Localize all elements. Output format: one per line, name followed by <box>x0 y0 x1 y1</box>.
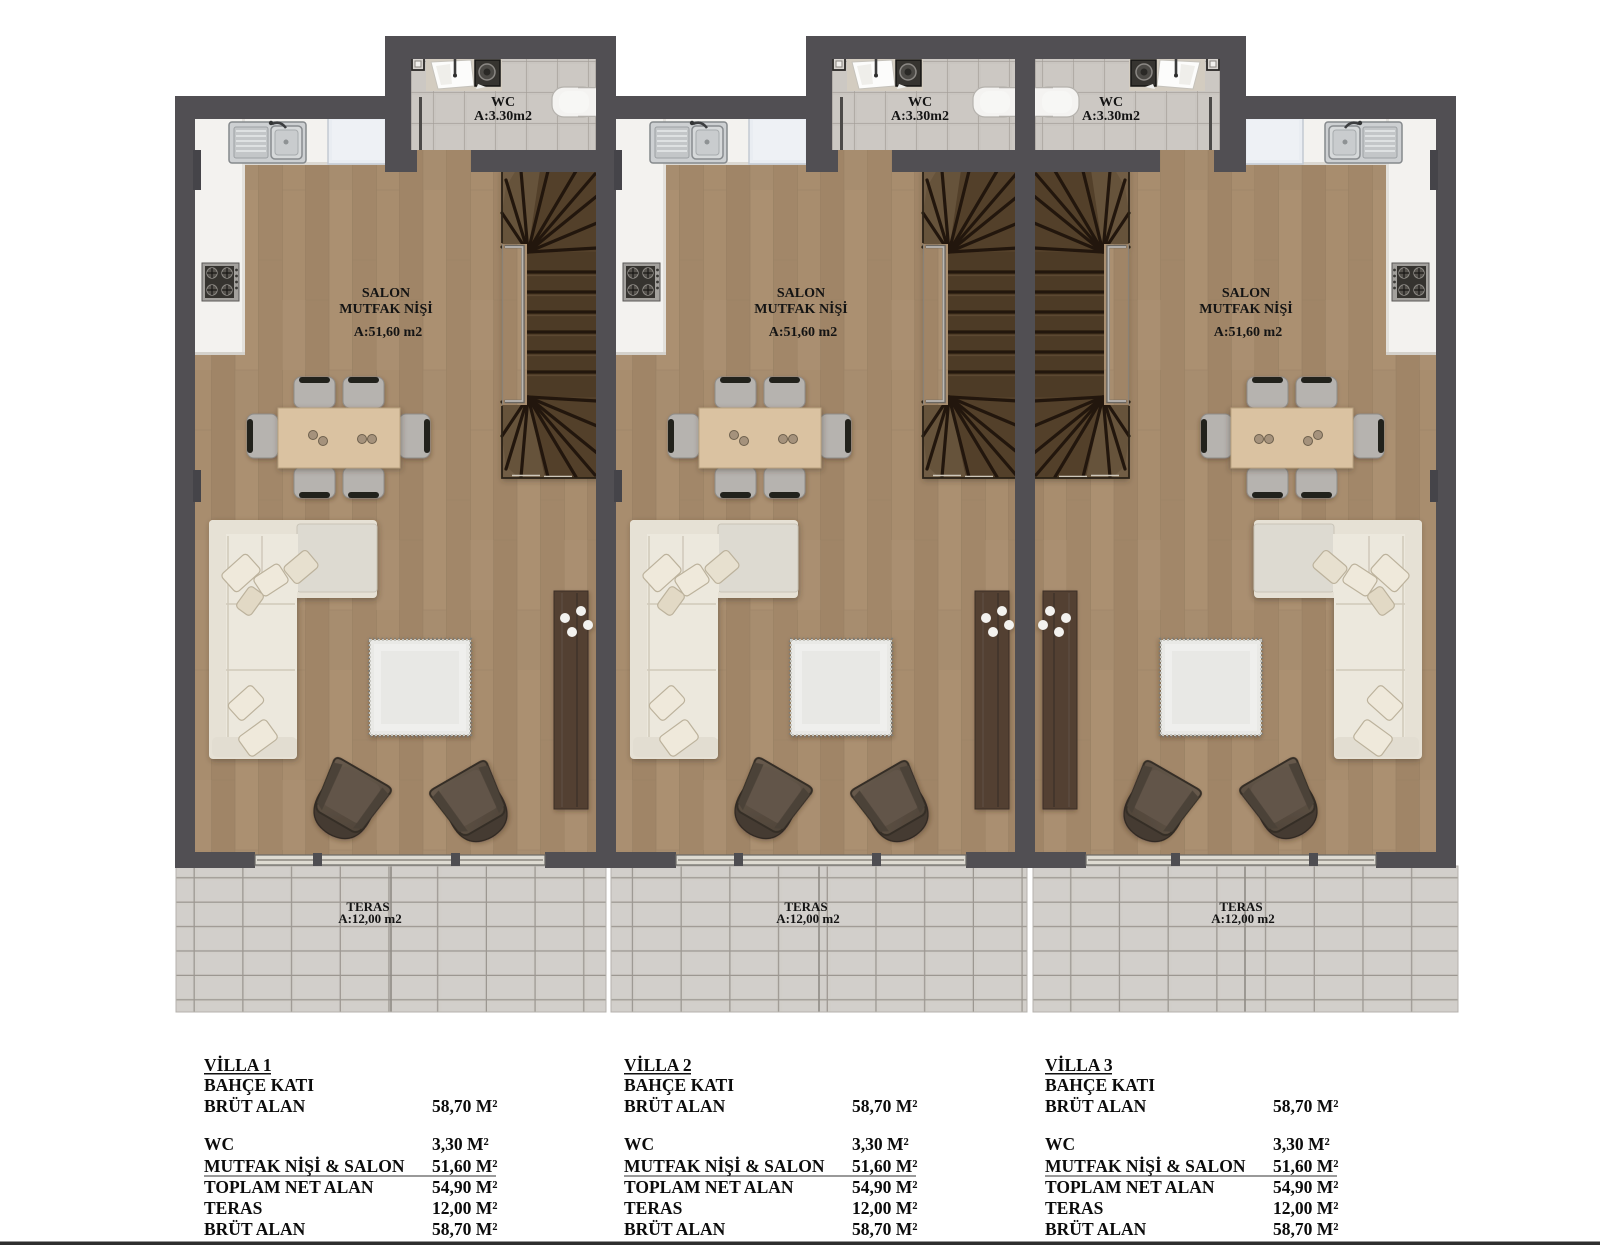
svg-text:BRÜT ALAN: BRÜT ALAN <box>204 1219 306 1239</box>
svg-text:54,90 M²: 54,90 M² <box>432 1177 498 1197</box>
svg-text:VİLLA 1: VİLLA 1 <box>204 1055 272 1075</box>
svg-text:58,70 M²: 58,70 M² <box>852 1219 918 1239</box>
svg-text:51,60 M²: 51,60 M² <box>432 1156 498 1176</box>
svg-text:WC: WC <box>908 95 932 110</box>
svg-text:TERAS: TERAS <box>624 1198 682 1218</box>
svg-text:BRÜT ALAN: BRÜT ALAN <box>624 1219 726 1239</box>
svg-text:BAHÇE KATI: BAHÇE KATI <box>204 1075 314 1095</box>
svg-text:TOPLAM NET ALAN: TOPLAM NET ALAN <box>624 1177 794 1197</box>
svg-text:TERAS: TERAS <box>1045 1198 1103 1218</box>
svg-text:MUTFAK NİŞİ & SALON: MUTFAK NİŞİ & SALON <box>204 1156 405 1176</box>
svg-text:3,30 M²: 3,30 M² <box>432 1134 489 1154</box>
svg-text:WC: WC <box>1099 95 1123 110</box>
svg-text:12,00 M²: 12,00 M² <box>1273 1198 1339 1218</box>
svg-text:WC: WC <box>204 1134 234 1154</box>
svg-text:A:51,60 m2: A:51,60 m2 <box>354 325 422 340</box>
svg-text:MUTFAK NİŞİ: MUTFAK NİŞİ <box>339 300 432 317</box>
svg-text:TERAS: TERAS <box>204 1198 262 1218</box>
svg-text:58,70 M²: 58,70 M² <box>1273 1219 1339 1239</box>
svg-text:12,00 M²: 12,00 M² <box>432 1198 498 1218</box>
svg-text:A:51,60 m2: A:51,60 m2 <box>769 325 837 340</box>
svg-text:A:3.30m2: A:3.30m2 <box>1082 109 1140 124</box>
svg-text:A:12,00 m2: A:12,00 m2 <box>338 911 402 926</box>
svg-text:12,00 M²: 12,00 M² <box>852 1198 918 1218</box>
svg-text:58,70 M²: 58,70 M² <box>432 1219 498 1239</box>
svg-text:MUTFAK NİŞİ: MUTFAK NİŞİ <box>1199 300 1292 317</box>
svg-text:MUTFAK NİŞİ: MUTFAK NİŞİ <box>754 300 847 317</box>
svg-text:SALON: SALON <box>362 286 410 301</box>
svg-text:BRÜT ALAN: BRÜT ALAN <box>1045 1096 1147 1116</box>
svg-text:VİLLA 2: VİLLA 2 <box>624 1055 692 1075</box>
svg-text:58,70 M²: 58,70 M² <box>432 1096 498 1116</box>
svg-text:VİLLA 3: VİLLA 3 <box>1045 1055 1113 1075</box>
svg-text:BAHÇE KATI: BAHÇE KATI <box>624 1075 734 1095</box>
svg-text:WC: WC <box>624 1134 654 1154</box>
svg-text:TOPLAM NET ALAN: TOPLAM NET ALAN <box>1045 1177 1215 1197</box>
svg-text:BRÜT ALAN: BRÜT ALAN <box>624 1096 726 1116</box>
svg-text:WC: WC <box>1045 1134 1075 1154</box>
svg-text:BRÜT ALAN: BRÜT ALAN <box>204 1096 306 1116</box>
svg-text:A:51,60 m2: A:51,60 m2 <box>1214 325 1282 340</box>
svg-text:58,70 M²: 58,70 M² <box>852 1096 918 1116</box>
svg-text:A:3.30m2: A:3.30m2 <box>891 109 949 124</box>
svg-text:3,30 M²: 3,30 M² <box>852 1134 909 1154</box>
svg-text:3,30 M²: 3,30 M² <box>1273 1134 1330 1154</box>
svg-text:A:12,00 m2: A:12,00 m2 <box>776 911 840 926</box>
svg-text:A:12,00 m2: A:12,00 m2 <box>1211 911 1275 926</box>
svg-text:BRÜT ALAN: BRÜT ALAN <box>1045 1219 1147 1239</box>
svg-text:SALON: SALON <box>777 286 825 301</box>
svg-text:WC: WC <box>491 95 515 110</box>
svg-text:51,60 M²: 51,60 M² <box>1273 1156 1339 1176</box>
svg-text:51,60 M²: 51,60 M² <box>852 1156 918 1176</box>
svg-text:58,70 M²: 58,70 M² <box>1273 1096 1339 1116</box>
svg-text:TOPLAM NET ALAN: TOPLAM NET ALAN <box>204 1177 374 1197</box>
svg-text:MUTFAK NİŞİ & SALON: MUTFAK NİŞİ & SALON <box>624 1156 825 1176</box>
svg-text:54,90 M²: 54,90 M² <box>1273 1177 1339 1197</box>
svg-text:MUTFAK NİŞİ & SALON: MUTFAK NİŞİ & SALON <box>1045 1156 1246 1176</box>
svg-text:A:3.30m2: A:3.30m2 <box>474 109 532 124</box>
svg-text:BAHÇE KATI: BAHÇE KATI <box>1045 1075 1155 1095</box>
svg-text:54,90 M²: 54,90 M² <box>852 1177 918 1197</box>
svg-text:SALON: SALON <box>1222 286 1270 301</box>
